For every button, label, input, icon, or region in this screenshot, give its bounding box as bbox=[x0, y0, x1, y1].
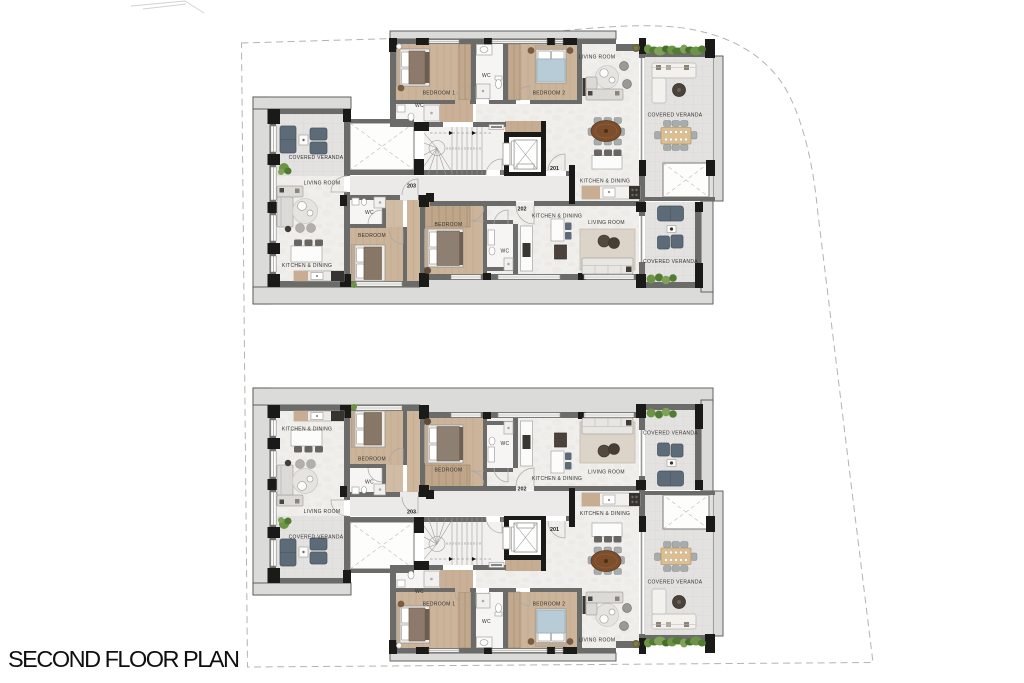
svg-text:COVERED VERANDA: COVERED VERANDA bbox=[289, 155, 344, 161]
svg-text:KITCHEN & DINING: KITCHEN & DINING bbox=[580, 179, 630, 185]
svg-text:KITCHEN & DINING: KITCHEN & DINING bbox=[580, 511, 630, 517]
svg-text:202: 202 bbox=[518, 486, 527, 492]
svg-text:BEDROOM 1: BEDROOM 1 bbox=[423, 602, 456, 608]
svg-text:WC: WC bbox=[501, 249, 510, 255]
svg-text:BEDROOM 2: BEDROOM 2 bbox=[533, 602, 566, 608]
svg-text:202: 202 bbox=[518, 206, 527, 212]
svg-text:LIVING ROOM: LIVING ROOM bbox=[588, 470, 625, 476]
svg-text:BEDROOM: BEDROOM bbox=[358, 233, 386, 239]
svg-text:WC: WC bbox=[365, 480, 374, 486]
svg-text:WC: WC bbox=[365, 210, 374, 216]
svg-text:BEDROOM: BEDROOM bbox=[435, 222, 463, 228]
svg-text:WC: WC bbox=[482, 73, 491, 79]
svg-text:LIVING ROOM: LIVING ROOM bbox=[579, 638, 616, 644]
svg-text:201: 201 bbox=[550, 166, 559, 172]
svg-text:BEDROOM: BEDROOM bbox=[435, 468, 463, 474]
svg-text:WC: WC bbox=[415, 103, 424, 109]
svg-text:KITCHEN & DINING: KITCHEN & DINING bbox=[532, 214, 582, 220]
svg-text:COVERED VERANDA: COVERED VERANDA bbox=[648, 113, 703, 119]
svg-text:LIVING ROOM: LIVING ROOM bbox=[588, 220, 625, 226]
svg-text:203: 203 bbox=[407, 183, 416, 189]
svg-text:COVERED VERANDA: COVERED VERANDA bbox=[643, 259, 698, 265]
svg-text:COVERED VERANDA: COVERED VERANDA bbox=[289, 535, 344, 541]
svg-text:KITCHEN & DINING: KITCHEN & DINING bbox=[532, 476, 582, 482]
svg-text:COVERED VERANDA: COVERED VERANDA bbox=[648, 580, 703, 586]
svg-text:BEDROOM: BEDROOM bbox=[358, 457, 386, 463]
svg-text:WC: WC bbox=[415, 589, 424, 595]
svg-text:BEDROOM 1: BEDROOM 1 bbox=[423, 91, 456, 97]
svg-text:KITCHEN & DINING: KITCHEN & DINING bbox=[282, 263, 332, 269]
svg-text:LIVING ROOM: LIVING ROOM bbox=[304, 509, 341, 515]
svg-text:BEDROOM 2: BEDROOM 2 bbox=[533, 91, 566, 97]
svg-text:201: 201 bbox=[550, 527, 559, 533]
svg-text:WC: WC bbox=[501, 441, 510, 447]
svg-text:WC: WC bbox=[482, 619, 491, 625]
svg-text:KITCHEN & DINING: KITCHEN & DINING bbox=[282, 427, 332, 433]
svg-text:LIVING ROOM: LIVING ROOM bbox=[304, 181, 341, 187]
svg-text:LIVING ROOM: LIVING ROOM bbox=[579, 55, 616, 61]
svg-text:203: 203 bbox=[407, 509, 416, 515]
svg-text:SECOND FLOOR PLAN: SECOND FLOOR PLAN bbox=[8, 646, 239, 672]
svg-text:COVERED VERANDA: COVERED VERANDA bbox=[643, 431, 698, 437]
